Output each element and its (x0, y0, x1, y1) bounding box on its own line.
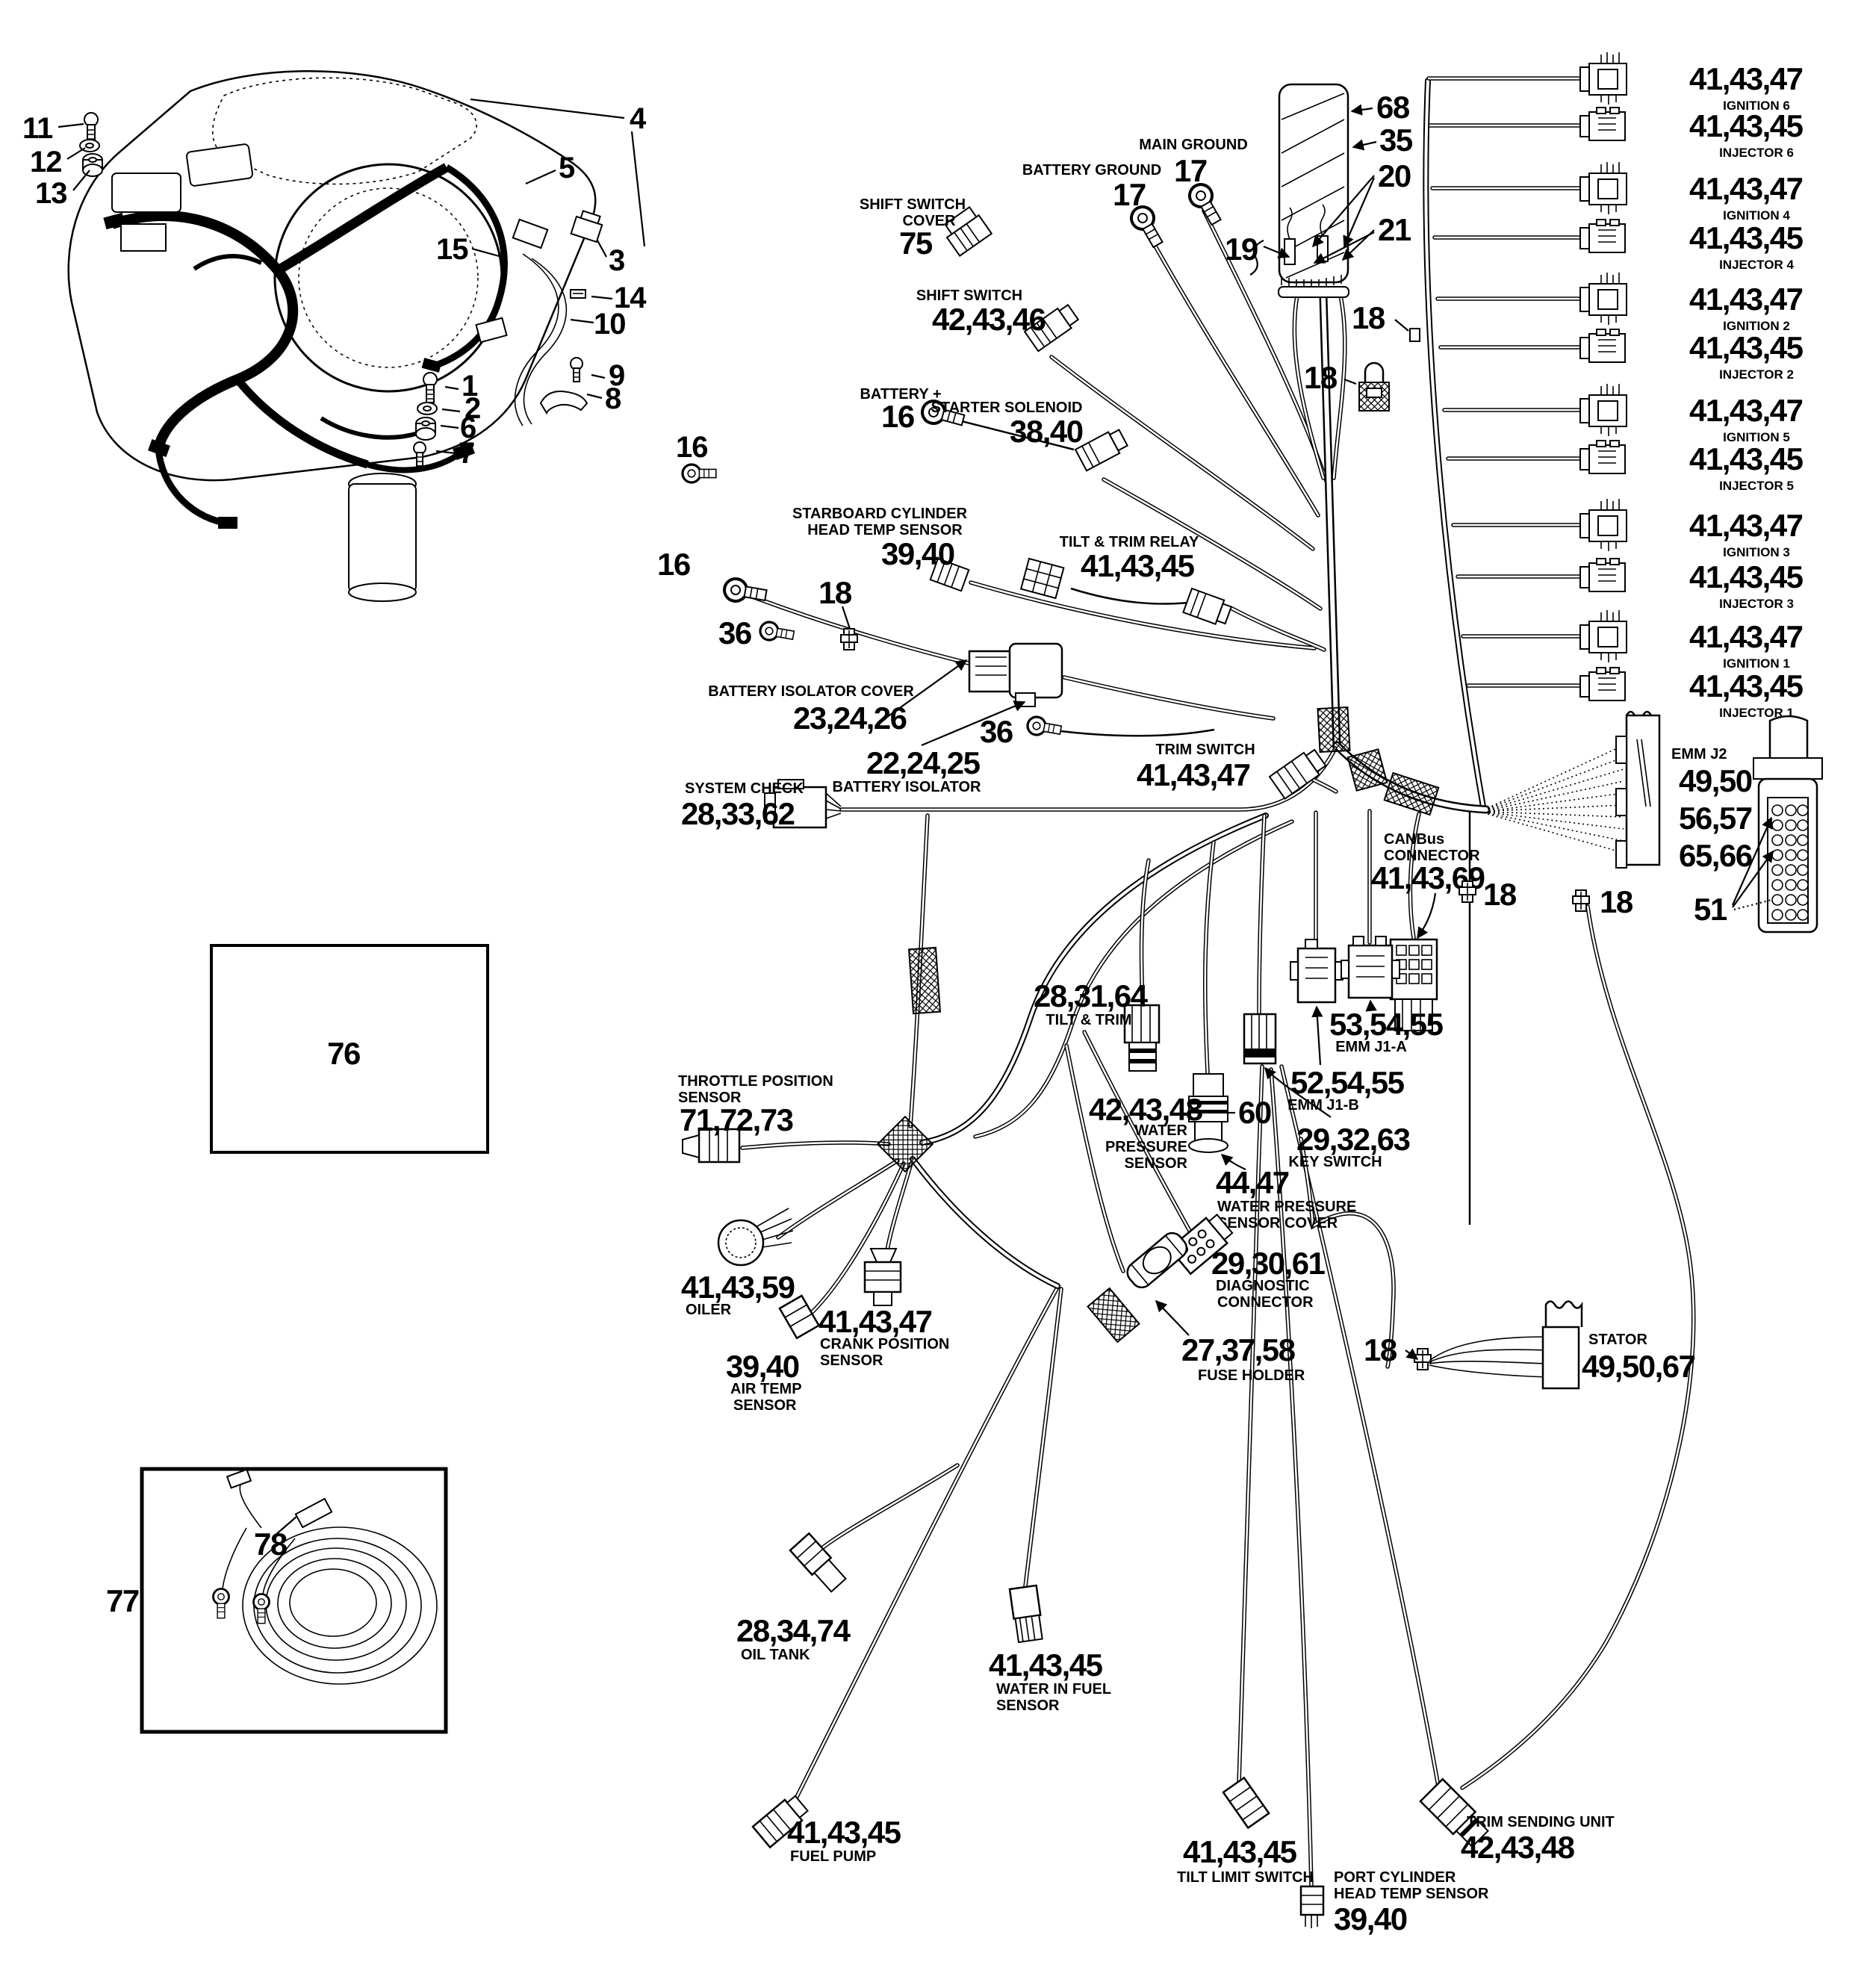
callout-77: 77 (106, 1583, 139, 1618)
canbus-label: CANBus (1384, 831, 1444, 848)
system-check-num: 28,33,62 (681, 796, 795, 831)
tilt-limit-label: TILT LIMIT SWITCH (1177, 1869, 1314, 1886)
tps-num: 71,72,73 (680, 1102, 793, 1137)
battery-isolator-cover-num: 23,24,26 (793, 701, 907, 736)
main-ground-num: 17 (1174, 153, 1207, 188)
injector-4-label: INJECTOR 4 (1719, 258, 1794, 272)
tps-label: THROTTLE POSITION (678, 1073, 833, 1090)
injector-3-label: INJECTOR 3 (1719, 597, 1794, 611)
tilt-trim-num: 28,31,64 (1034, 978, 1149, 1013)
callout-35: 35 (1379, 122, 1413, 158)
wif-label2: SENSOR (996, 1697, 1060, 1714)
ring36a-num: 36 (718, 615, 751, 650)
injector-5-num: 41,43,45 (1689, 441, 1804, 476)
shift-switch-cover-label: SHIFT SWITCH (860, 196, 966, 213)
callout-4: 4 (630, 102, 647, 135)
harness-sleeve (909, 948, 940, 1013)
key-switch-connector (1244, 1014, 1276, 1063)
trim-switch-num: 41,43,47 (1137, 757, 1250, 792)
fuel-pump-num: 41,43,45 (787, 1815, 901, 1850)
callout-15: 15 (436, 233, 468, 266)
oil-tank-label: OIL TANK (741, 1647, 810, 1663)
callout-13: 13 (35, 177, 67, 210)
ignition-3-num: 41,43,47 (1689, 508, 1803, 543)
cable-tie-icon (1573, 890, 1589, 911)
port-head-temp-num: 39,40 (1334, 1901, 1407, 1936)
emm-j1a-num: 53,54,55 (1329, 1007, 1444, 1042)
oiler-label: OILER (686, 1302, 732, 1318)
ignition-2-num: 41,43,47 (1689, 282, 1803, 317)
callout-78: 78 (254, 1526, 288, 1562)
callout-76: 76 (327, 1036, 360, 1071)
callout-10: 10 (594, 308, 626, 341)
main-ground-label: MAIN GROUND (1139, 137, 1248, 153)
ignition-4-num: 41,43,47 (1689, 171, 1803, 206)
oil-tank-num: 28,34,74 (736, 1613, 851, 1648)
cable-tie-icon (1459, 881, 1476, 902)
emm-j2-num1: 49,50 (1679, 763, 1752, 798)
clip-icon (571, 290, 585, 298)
cable-tie-icon (841, 629, 857, 650)
callout-51: 51 (1694, 892, 1727, 927)
stbd-head-temp-label: STARBOARD CYLINDER (792, 506, 968, 522)
emm-j1b-num: 52,54,55 (1290, 1065, 1405, 1100)
diagnostic-label: DIAGNOSTIC (1216, 1278, 1310, 1294)
key-switch-label: KEY SWITCH (1288, 1154, 1382, 1170)
key-switch-num: 29,32,63 (1296, 1122, 1410, 1157)
wps-label3: SENSOR (1125, 1155, 1188, 1172)
callout-60: 60 (1238, 1095, 1271, 1130)
injector-5-label: INJECTOR 5 (1719, 479, 1794, 493)
battery-isolator-label: BATTERY ISOLATOR (833, 779, 981, 795)
injector-2-num: 41,43,45 (1689, 330, 1804, 365)
inset-box-76: 76 (211, 945, 488, 1152)
battery-ground-num: 17 (1113, 177, 1146, 212)
emm-j1a-label: EMM J1-A (1335, 1039, 1407, 1055)
ignition-3-label: IGNITION 3 (1723, 545, 1790, 559)
callout-5: 5 (559, 152, 575, 184)
fuse-holder-label: FUSE HOLDER (1198, 1367, 1305, 1384)
oiler-num: 41,43,59 (681, 1270, 795, 1305)
callout-18-lock: 18 (1304, 360, 1338, 395)
wif-num: 41,43,45 (989, 1647, 1103, 1683)
injector-4-num: 41,43,45 (1689, 220, 1804, 255)
injector-2-label: INJECTOR 2 (1719, 367, 1794, 382)
tilt-trim-label: TILT & TRIM (1046, 1012, 1131, 1028)
ignition-1-num: 41,43,47 (1689, 619, 1803, 654)
tie18-canbus-num: 18 (1483, 877, 1517, 912)
battery-plus-num: 16 (881, 399, 914, 434)
wps-label2: PRESSURE (1105, 1139, 1187, 1155)
wif-label: WATER IN FUEL (996, 1681, 1111, 1697)
injector-1-num: 41,43,45 (1689, 668, 1804, 703)
starter-solenoid-num: 38,40 (1010, 414, 1083, 449)
wps-cover-label2: SENSOR COVER (1217, 1215, 1338, 1231)
port-head-temp-label2: HEAD TEMP SENSOR (1334, 1886, 1489, 1902)
callout-12: 12 (30, 146, 62, 178)
clamp-icon (1410, 329, 1420, 341)
battery-isolator-num: 22,24,25 (866, 745, 981, 780)
shift-switch-cover-num: 75 (899, 226, 933, 261)
trim-sending-num: 42,43,48 (1461, 1830, 1575, 1865)
crank-num: 41,43,47 (818, 1304, 932, 1339)
crank-label2: SENSOR (820, 1352, 883, 1369)
stator-label: STATOR (1588, 1332, 1647, 1348)
trim-switch-label: TRIM SWITCH (1155, 742, 1255, 758)
injector-3-num: 41,43,45 (1689, 559, 1804, 594)
wps-num: 42,43,48 (1089, 1092, 1203, 1127)
injector-6-num: 41,43,45 (1689, 108, 1804, 143)
grommet-icon (416, 417, 435, 440)
ring16-num: 16 (657, 547, 690, 582)
fuel-pump-label: FUEL PUMP (790, 1848, 876, 1865)
diagnostic-label2: CONNECTOR (1217, 1294, 1314, 1311)
tie18a-num: 18 (818, 575, 852, 610)
callout-7: 7 (459, 437, 474, 470)
wps-label: WATER (1134, 1122, 1187, 1139)
tilt-trim-relay-num: 41,43,45 (1081, 548, 1195, 583)
callout-19: 19 (1225, 232, 1258, 267)
emm-j2-num3: 65,66 (1679, 838, 1752, 873)
battery-isolator-cover-label: BATTERY ISOLATOR COVER (708, 683, 914, 700)
injector-6-label: INJECTOR 6 (1719, 146, 1794, 160)
harness-sleeve (1318, 707, 1350, 752)
callout-3: 3 (609, 244, 624, 277)
diagnostic-num: 29,30,61 (1211, 1246, 1326, 1281)
emm-j1b-connector (1290, 939, 1343, 1002)
shift-switch-num: 42,43,46 (932, 302, 1046, 337)
callout-68: 68 (1376, 90, 1410, 125)
ignition-5-num: 41,43,47 (1689, 393, 1803, 428)
stator-tie-num: 18 (1364, 1332, 1397, 1367)
inset-box-cable-kit: 77 78 (106, 1469, 446, 1732)
port-head-temp-label: PORT CYLINDER (1334, 1869, 1456, 1886)
injector-1-label: INJECTOR 1 (1719, 706, 1794, 720)
emm-j2-label: EMM J2 (1671, 746, 1727, 762)
ring36b-num: 36 (980, 714, 1013, 749)
callout-18-clamp: 18 (1352, 300, 1385, 335)
fuse-holder-num: 27,37,58 (1181, 1332, 1296, 1367)
wiring-harness-diagram: 11 12 13 4 5 3 14 10 15 9 8 1 2 6 7 16 7… (0, 0, 1867, 1988)
callout-11: 11 (22, 112, 53, 145)
air-temp-label: AIR TEMP (730, 1381, 802, 1397)
air-temp-label2: SENSOR (733, 1397, 797, 1414)
wps-cover-label: WATER PRESSURE (1217, 1199, 1356, 1215)
air-temp-num: 39,40 (726, 1349, 799, 1384)
trim-sending-label: TRIM SENDING UNIT (1467, 1814, 1615, 1830)
stbd-head-temp-num: 39,40 (881, 536, 954, 571)
washer-icon (417, 403, 437, 414)
system-check-label: SYSTEM CHECK (685, 780, 804, 797)
crank-label: CRANK POSITION (820, 1336, 949, 1352)
ignition-6-num: 41,43,47 (1689, 61, 1803, 96)
callout-16: 16 (676, 431, 708, 464)
system-check-group: SYSTEM CHECK 28,33,62 (681, 780, 841, 831)
tilt-limit-num: 41,43,45 (1183, 1834, 1297, 1869)
emm-j2-num2: 56,57 (1679, 801, 1752, 836)
callout-8: 8 (605, 382, 621, 415)
stator-num: 49,50,67 (1582, 1349, 1695, 1384)
callout-21: 21 (1378, 212, 1411, 247)
wps-cover-num: 44,47 (1216, 1165, 1289, 1200)
tie18-j2-num: 18 (1600, 884, 1633, 919)
emm-j1a-connector (1341, 936, 1400, 998)
callout-20: 20 (1378, 158, 1411, 193)
battery-isolator-cover-icon (1010, 644, 1062, 698)
battery-ground-label: BATTERY GROUND (1022, 162, 1161, 178)
grommet-icon (83, 154, 102, 176)
